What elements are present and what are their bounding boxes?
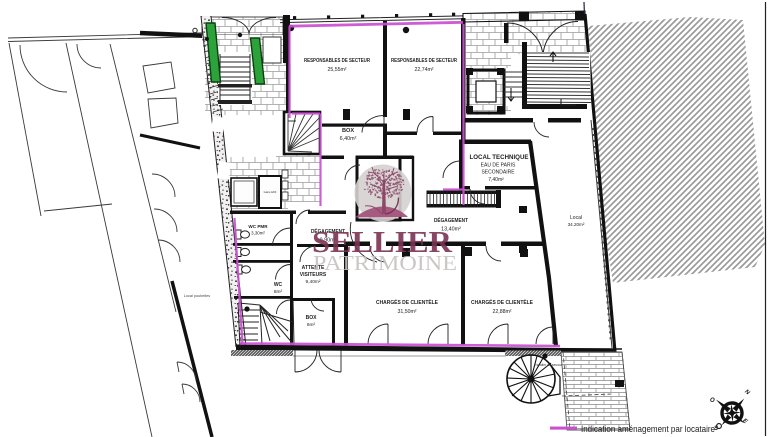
svg-text:9,40m²: 9,40m² (306, 279, 321, 285)
svg-text:7,40m²: 7,40m² (488, 177, 504, 183)
svg-text:Indication aménagement par loc: Indication aménagement par locataire (581, 424, 715, 434)
svg-text:RESPONSABLES DE SECTEUR: RESPONSABLES DE SECTEUR (391, 58, 457, 64)
svg-text:Local: Local (570, 215, 582, 221)
svg-text:25,55m²: 25,55m² (327, 67, 346, 73)
svg-text:BOX: BOX (342, 128, 354, 134)
svg-text:PATRIMOINE: PATRIMOINE (313, 251, 457, 275)
svg-text:WC: WC (274, 282, 283, 288)
svg-text:22,74m²: 22,74m² (414, 67, 433, 73)
svg-text:CHARGÉS DE CLIENTÈLE: CHARGÉS DE CLIENTÈLE (376, 298, 438, 306)
svg-text:S: S (714, 426, 718, 432)
svg-text:RESPONSABLES DE SECTEUR: RESPONSABLES DE SECTEUR (304, 58, 370, 64)
svg-text:3,30m²: 3,30m² (251, 231, 265, 236)
svg-text:Gaine EDF: Gaine EDF (264, 190, 277, 194)
svg-text:DÉGAGEMENT: DÉGAGEMENT (434, 216, 469, 224)
svg-text:6m²: 6m² (307, 322, 316, 328)
svg-text:CHARGÉS DE CLIENTÈLE: CHARGÉS DE CLIENTÈLE (471, 298, 533, 306)
svg-text:LOCAL TECHNIQUE: LOCAL TECHNIQUE (470, 154, 530, 161)
svg-text:6,40m²: 6,40m² (340, 136, 357, 142)
svg-text:Escalier de secours: Escalier de secours (534, 363, 564, 367)
svg-text:8m²: 8m² (274, 289, 283, 295)
svg-text:O: O (710, 398, 715, 404)
svg-text:EAU DE PARIS: EAU DE PARIS (481, 163, 516, 169)
svg-text:WC PMR: WC PMR (248, 224, 268, 229)
svg-text:Local poubelles: Local poubelles (184, 294, 210, 298)
svg-text:34.20m²: 34.20m² (568, 222, 585, 227)
svg-text:SECONDAIRE: SECONDAIRE (481, 170, 515, 176)
svg-text:31,50m²: 31,50m² (397, 309, 416, 315)
svg-text:BOX: BOX (306, 315, 318, 321)
svg-text:22,88m²: 22,88m² (492, 309, 511, 315)
